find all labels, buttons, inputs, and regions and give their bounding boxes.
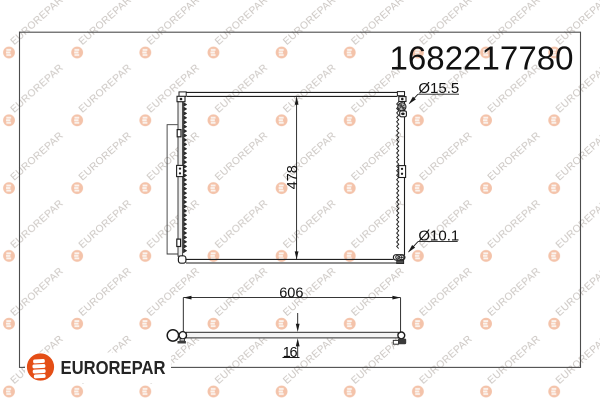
svg-text:478: 478: [285, 165, 301, 189]
svg-text:1682217780: 1682217780: [390, 40, 574, 77]
svg-text:EUROREPAR: EUROREPAR: [61, 357, 167, 378]
svg-text:16: 16: [283, 345, 298, 361]
svg-text:606: 606: [279, 285, 303, 301]
